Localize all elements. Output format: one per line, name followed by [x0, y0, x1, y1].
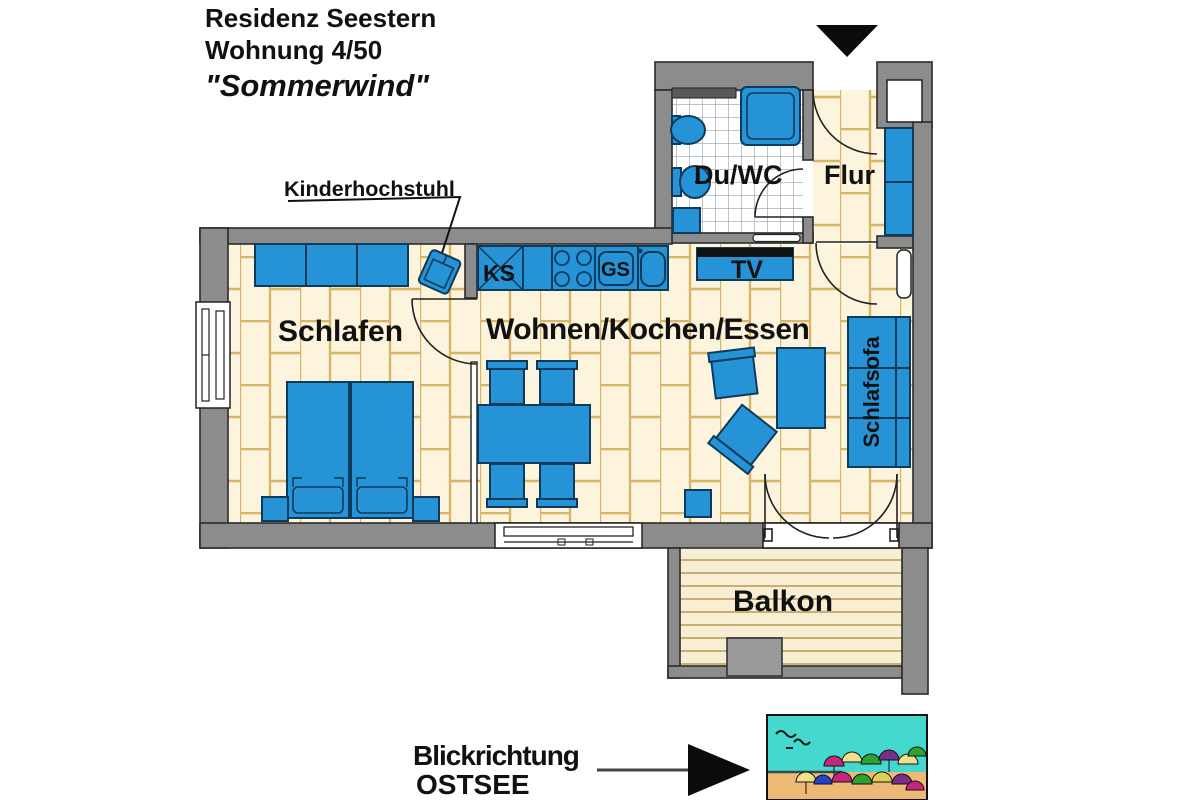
dining-chair — [490, 369, 524, 404]
label-schlafen: Schlafen — [278, 315, 403, 348]
wall-bath-hall-upper — [803, 90, 813, 160]
title-line-1: Residenz Seestern — [205, 3, 436, 33]
label-du-wc: Du/WC — [694, 160, 782, 190]
view-direction-arrow — [597, 744, 750, 796]
dining-chair — [490, 464, 524, 499]
radiator — [897, 250, 911, 298]
dining-chair — [540, 464, 574, 499]
wall-balcony-right-column — [902, 548, 928, 694]
armchair-upper — [708, 347, 759, 398]
chair-back — [487, 499, 527, 507]
nightstand-right — [413, 497, 439, 521]
wardrobe-body — [255, 244, 408, 286]
nightstand-left — [262, 497, 288, 521]
label-balkon: Balkon — [733, 585, 833, 618]
bath-shelf-strip — [672, 88, 736, 98]
label-schlafsofa: Schlafsofa — [859, 336, 884, 448]
wall-right — [913, 122, 932, 548]
niche-top-right — [887, 80, 922, 122]
window-bedroom-left — [196, 302, 230, 408]
wardrobe-hallway — [885, 128, 913, 235]
arrow-head-icon — [688, 744, 750, 796]
sink-faucet — [638, 249, 643, 254]
beach-picture — [767, 715, 927, 800]
wall-balcony-left — [668, 548, 680, 678]
chair-back — [537, 499, 577, 507]
window-frame — [196, 302, 230, 408]
dining-chair — [540, 369, 574, 404]
partition-bedroom-living — [471, 362, 477, 523]
washbasin — [671, 116, 705, 144]
pillow-right — [357, 487, 407, 513]
label-gs: GS — [601, 259, 630, 281]
label-wohnen-kochen-essen: Wohnen/Kochen/Essen — [486, 313, 809, 346]
chair-back — [537, 361, 577, 369]
stool — [685, 490, 711, 517]
window-living-bottom — [495, 523, 642, 548]
balcony-door-threshold — [763, 523, 899, 548]
wall-main-top — [200, 228, 672, 244]
floor-plan-page: Residenz Seestern Wohnung 4/50 "Sommerwi… — [0, 0, 1200, 800]
chair-back — [487, 361, 527, 369]
wall-balcony-bottom — [668, 666, 902, 678]
label-kinderhochstuhl: Kinderhochstuhl — [284, 177, 455, 201]
wardrobe-bedroom — [255, 244, 408, 286]
title-line-3: "Sommerwind" — [205, 68, 430, 103]
label-ks: KS — [483, 260, 515, 286]
title-line-2: Wohnung 4/50 — [205, 35, 382, 65]
balcony-table — [727, 638, 782, 676]
pillow-left — [293, 487, 343, 513]
wall-bath-left — [655, 90, 672, 243]
floor-plan-drawing: Residenz Seestern Wohnung 4/50 "Sommerwi… — [0, 0, 1200, 800]
armchair-seat — [711, 357, 757, 399]
shower-tray — [741, 87, 800, 145]
bath-cabinet — [673, 208, 700, 233]
dining-table — [478, 405, 590, 463]
label-blickrichtung: Blickrichtung — [413, 740, 579, 771]
label-tv: TV — [731, 256, 763, 284]
coffee-table — [777, 348, 825, 428]
wall-hall-living-stub — [877, 236, 913, 248]
double-bed — [287, 382, 413, 518]
label-flur: Flur — [824, 160, 875, 190]
bath-threshold — [753, 235, 800, 242]
wall-bedroom-door-stub — [465, 244, 477, 298]
label-ostsee: OSTSEE — [416, 769, 530, 800]
entrance-marker-triangle — [816, 25, 878, 57]
wall-top-wing — [655, 62, 813, 90]
wall-bath-hall-lower — [803, 217, 813, 243]
